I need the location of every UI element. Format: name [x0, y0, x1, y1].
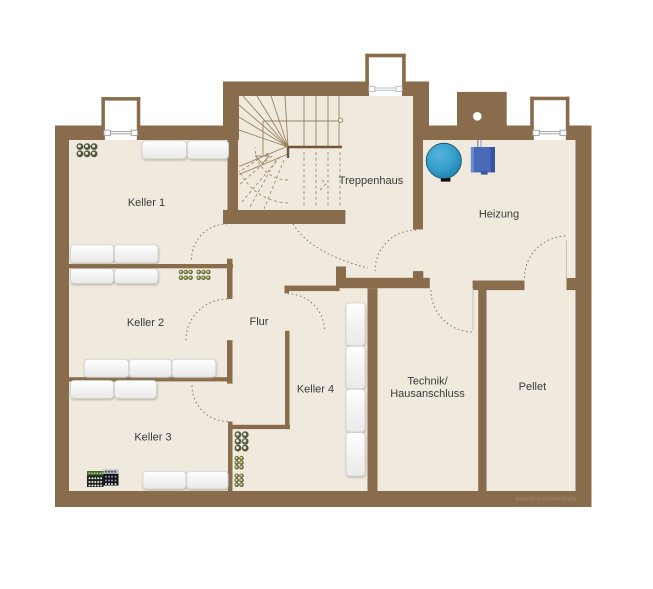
svg-text:Keller 3: Keller 3	[134, 432, 171, 444]
svg-text:Technik/: Technik/	[407, 375, 448, 387]
svg-text:Pellet: Pellet	[519, 381, 547, 393]
svg-text:Flur: Flur	[250, 316, 269, 328]
svg-text:Treppenhaus: Treppenhaus	[339, 175, 404, 187]
svg-text:Keller 4: Keller 4	[297, 384, 334, 396]
svg-text:Hausanschluss: Hausanschluss	[390, 388, 465, 400]
svg-text:Keller 1: Keller 1	[128, 197, 165, 209]
svg-text:Heizung: Heizung	[479, 209, 519, 221]
svg-text:Keller 2: Keller 2	[127, 317, 164, 329]
svg-text:Illustration GrimmeGrafik: Illustration GrimmeGrafik	[516, 497, 577, 503]
